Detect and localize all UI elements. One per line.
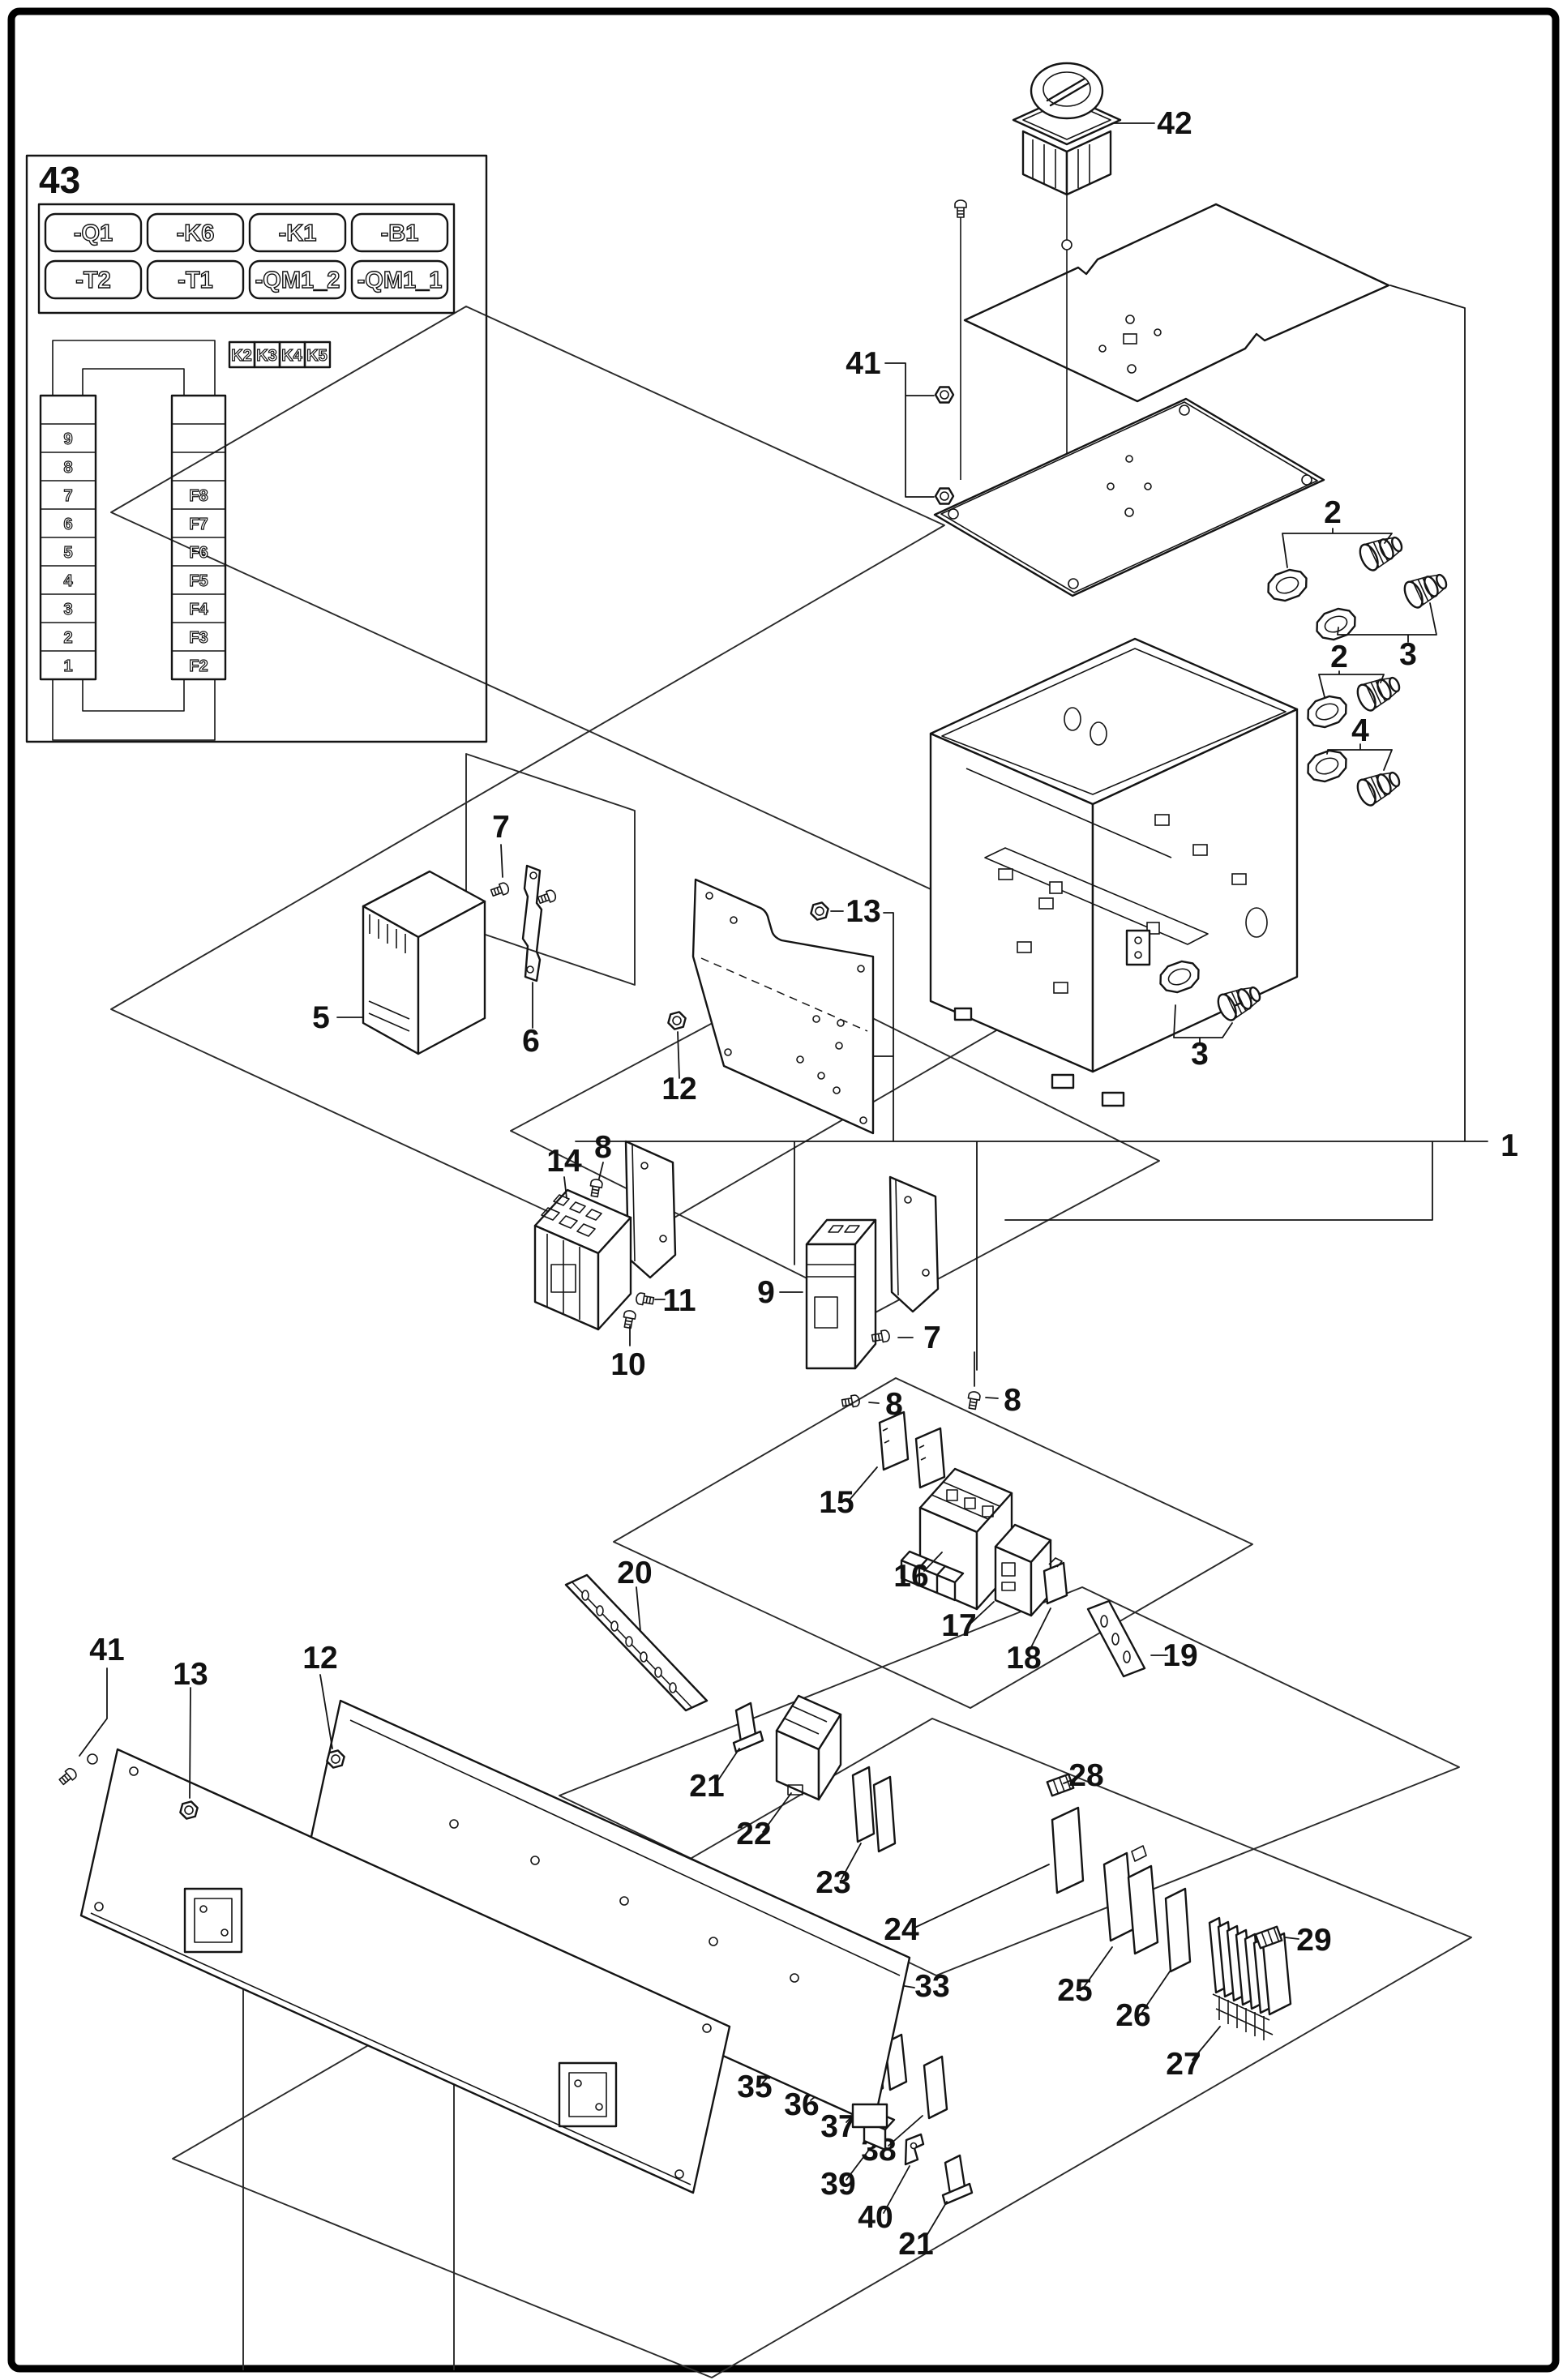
part-40-bracket — [906, 2134, 923, 2164]
callout-26: 26 — [1115, 1998, 1150, 2033]
gasket-hole — [1126, 315, 1134, 323]
callout-42: 42 — [1157, 106, 1192, 141]
rail-slot — [1112, 1633, 1119, 1645]
terminal-label: F5 — [189, 572, 208, 590]
k-label: K3 — [256, 347, 277, 365]
rail-slot — [582, 1590, 589, 1600]
tag-label: -QM1_2 — [255, 268, 340, 293]
screw-icon — [966, 1391, 980, 1410]
legend-number: 43 — [39, 159, 80, 201]
terminal-label: 8 — [63, 459, 72, 477]
end-plate — [1166, 1889, 1190, 1971]
plate-hole — [836, 1042, 842, 1049]
locknut-icon — [1312, 604, 1360, 644]
callout-8: 8 — [594, 1130, 612, 1165]
cover-corner-hole — [1180, 405, 1189, 415]
box-bracket-tab — [1127, 931, 1150, 965]
terminal-label: 5 — [63, 544, 72, 562]
box-foot-tab — [955, 1008, 971, 1020]
cover-hole — [1125, 508, 1133, 516]
box-knockout — [1193, 845, 1207, 855]
callout-27: 27 — [1166, 2047, 1201, 2082]
plate-hole — [95, 1903, 103, 1911]
callout-13: 13 — [173, 1657, 208, 1692]
gasket-hole — [1124, 334, 1137, 344]
plate-hole — [660, 1235, 666, 1242]
box-foot-tab — [1052, 1075, 1073, 1088]
tab-hole — [1135, 952, 1141, 958]
plate-hole — [923, 1269, 929, 1276]
end-clamp-21a: 21 — [689, 1703, 763, 1804]
plate-hole — [730, 917, 737, 923]
callout-3: 3 — [1191, 1037, 1209, 1072]
tag-label: -T2 — [75, 268, 111, 293]
box-foot-tab — [1102, 1093, 1124, 1106]
cable-gland-icon — [1356, 530, 1406, 573]
terminal-label: 2 — [63, 629, 72, 647]
plate-hole — [818, 1072, 824, 1079]
contactor: 8 14 10 11 — [535, 1130, 696, 1382]
callout-20: 20 — [617, 1556, 652, 1590]
callout-41: 41 — [846, 346, 880, 381]
end-plate — [1052, 1808, 1083, 1893]
leader-20 — [636, 1587, 640, 1631]
box-knockout — [1039, 898, 1053, 909]
plate-hole — [641, 1162, 648, 1169]
plate-hole — [860, 1117, 867, 1124]
cover-hole — [1107, 483, 1114, 490]
rail-slot — [611, 1621, 618, 1631]
rail-clamp — [1050, 882, 1062, 893]
bracket-hole — [530, 872, 537, 879]
callout-42-group: 42 — [1112, 106, 1192, 141]
gasket-plate — [965, 204, 1389, 401]
pcb — [916, 1428, 944, 1487]
callout-1: 1 — [1501, 1128, 1518, 1163]
rail-slot — [626, 1637, 632, 1646]
rail-slot — [670, 1683, 676, 1693]
tag-label: -QM1_1 — [357, 268, 443, 293]
power-supply: 5 — [312, 871, 485, 1054]
terminal-wires-top — [53, 340, 215, 396]
callout-2: 2 — [1330, 640, 1348, 674]
plate-hole — [709, 1937, 717, 1946]
callout-24: 24 — [884, 1912, 919, 1947]
box-knockout — [1064, 708, 1081, 730]
terminal-label: F2 — [189, 657, 208, 675]
callout-2: 2 — [1324, 495, 1342, 530]
locknut-icon — [1304, 691, 1351, 731]
plate-hole — [725, 1049, 731, 1055]
plate-hole — [531, 1856, 539, 1864]
box-knockout — [1017, 942, 1031, 952]
mounting-bracket-6: 7 6 — [490, 810, 558, 1059]
cover-corner-hole — [948, 509, 958, 519]
k-label: K5 — [306, 347, 328, 365]
cover-plate — [935, 399, 1324, 596]
jumper-28: 28 — [1047, 1758, 1104, 1796]
plate-hole — [837, 1020, 844, 1026]
callout-21: 21 — [898, 2227, 933, 2262]
tag-label: -K1 — [279, 220, 317, 246]
starter-front — [807, 1244, 855, 1368]
rail-slot — [640, 1652, 647, 1662]
fastener-set-41-top: 41 — [846, 200, 966, 504]
callout-14: 14 — [546, 1144, 582, 1179]
callout-37: 37 — [820, 2109, 855, 2144]
box-knockout — [1246, 908, 1267, 937]
callout-41: 41 — [89, 1633, 124, 1667]
plate-hole — [905, 1196, 911, 1203]
rotary-switch — [1013, 63, 1120, 493]
rail-slot — [1101, 1616, 1107, 1627]
terminal-label: 3 — [63, 601, 72, 619]
terminal-strip-diagram: 9 8 7 6 5 4 3 2 1 F8 F7 F6 F5 F4 F3 F2 — [41, 340, 225, 740]
callout-29: 29 — [1296, 1923, 1331, 1958]
nut-icon — [666, 1011, 687, 1030]
plate-hole — [858, 965, 864, 972]
tag-label: -Q1 — [74, 220, 113, 246]
callout-18: 18 — [1006, 1641, 1041, 1676]
callout-10: 10 — [610, 1347, 645, 1382]
nut-icon — [935, 489, 953, 504]
callout-12: 12 — [661, 1072, 696, 1107]
leader-24 — [913, 1864, 1049, 1928]
screw-icon — [841, 1394, 860, 1408]
gasket-outline — [965, 204, 1389, 401]
gasket-hole — [1099, 345, 1106, 352]
callout-12: 12 — [302, 1641, 337, 1676]
callout-6: 6 — [522, 1024, 540, 1059]
callout-7: 7 — [923, 1321, 941, 1355]
tag-label: -B1 — [381, 220, 419, 246]
callout-13: 13 — [846, 894, 880, 929]
callout-8: 8 — [1004, 1383, 1021, 1418]
block-tab — [1132, 1846, 1146, 1861]
tag-label: -K6 — [177, 220, 215, 246]
plate-hole — [675, 2170, 683, 2178]
rail-slot — [1124, 1651, 1130, 1663]
bracket-screw — [575, 2080, 581, 2087]
bracket-hole — [911, 2143, 917, 2149]
leader-41-top — [885, 363, 934, 497]
part-18-body — [1044, 1563, 1067, 1603]
callout-22: 22 — [736, 1817, 771, 1851]
plate-hole — [703, 2024, 711, 2032]
callout-3: 3 — [1399, 637, 1417, 672]
plate-hole — [706, 892, 713, 899]
terminal-label: F4 — [189, 601, 208, 619]
soft-starter: 9 7 8 — [757, 1177, 941, 1422]
callout-16: 16 — [893, 1559, 928, 1594]
din-rail-20: 20 — [566, 1556, 707, 1710]
leader-6-7 — [501, 845, 533, 1028]
callout-17: 17 — [941, 1608, 976, 1643]
screw-icon — [622, 1310, 636, 1329]
box-knockout — [999, 869, 1013, 880]
terminal-block — [853, 1767, 874, 1842]
box-knockout — [1155, 815, 1169, 825]
rail-slot — [597, 1606, 603, 1616]
callout-19: 19 — [1162, 1638, 1197, 1673]
bracket-screw — [200, 1906, 207, 1912]
screw-icon — [636, 1292, 654, 1306]
plate-hole — [797, 1056, 803, 1063]
plate-hole — [813, 1016, 820, 1022]
washer-icon — [88, 1754, 97, 1764]
cable-gland-icon — [1354, 670, 1403, 713]
terminal-label: F6 — [189, 544, 208, 562]
terminal-label: F8 — [189, 487, 208, 505]
callout-5: 5 — [312, 1000, 330, 1035]
terminal-label: 1 — [63, 657, 72, 675]
mid-mounting-plate: 13 12 — [661, 880, 893, 1141]
nut-icon — [809, 901, 830, 921]
plate-hole — [833, 1087, 840, 1094]
enclosure-box — [931, 639, 1297, 1106]
k-label-row: K2 K3 K4 K5 — [229, 342, 330, 367]
callout-40: 40 — [858, 2200, 893, 2235]
starter-side — [855, 1220, 876, 1368]
cover-hole — [1145, 483, 1151, 490]
bracket-screw — [221, 1929, 228, 1936]
terminal-wires-bottom — [53, 679, 215, 740]
axis-fastener — [1062, 240, 1072, 250]
gasket-hole — [1154, 329, 1161, 336]
locknut-icon — [1264, 565, 1312, 605]
plate-hole — [130, 1767, 138, 1775]
plate-hole — [450, 1820, 458, 1828]
callout-23: 23 — [816, 1865, 850, 1900]
screw-icon — [955, 200, 966, 217]
cover-corner-hole — [1302, 475, 1312, 485]
terminal-label: F3 — [189, 629, 208, 647]
screw-icon — [589, 1179, 602, 1197]
callout-15: 15 — [819, 1485, 854, 1520]
terminal-block — [874, 1777, 895, 1851]
terminal-label: F7 — [189, 516, 208, 533]
k-label: K4 — [281, 347, 302, 365]
callout-4: 4 — [1351, 713, 1369, 748]
callout-33: 33 — [914, 1969, 949, 2004]
callout-9: 9 — [757, 1275, 775, 1310]
terminal-block — [1104, 1853, 1133, 1941]
screw-icon — [58, 1766, 78, 1786]
box-knockout — [1232, 874, 1246, 884]
terminal-label: 7 — [63, 487, 72, 505]
pcb — [880, 1412, 908, 1470]
box-knockout — [1054, 982, 1068, 993]
terminal-label: 4 — [63, 572, 73, 590]
leader-2-mid — [1319, 671, 1384, 697]
exploded-parts-diagram-page: 43 -Q1 -K6 -K1 -B1 -T2 -T1 -QM1_2 -QM1_1… — [0, 0, 1567, 2380]
gasket-hole — [1128, 365, 1136, 373]
plane-top-left — [111, 306, 944, 731]
din-rail-short-19: 19 — [1088, 1601, 1198, 1676]
callout-21: 21 — [689, 1769, 724, 1804]
cable-gland-icon — [1354, 765, 1403, 808]
bracket-screw — [596, 2104, 602, 2110]
plate-hole — [620, 1897, 628, 1905]
terminal-label: 9 — [63, 430, 72, 448]
terminal-block — [1128, 1866, 1158, 1954]
rail-slot — [655, 1667, 661, 1677]
cover-outline — [935, 399, 1324, 596]
subplate-group: 41 13 12 — [58, 1633, 910, 2193]
bracket-outline — [523, 866, 542, 981]
cover-hole — [1126, 456, 1132, 462]
screw-icon — [537, 889, 558, 905]
cable-gland-icon — [1401, 567, 1450, 610]
nut-icon — [935, 387, 953, 403]
bracket-hole — [527, 966, 533, 973]
end-plate-38 — [924, 2057, 947, 2118]
end-plate-24: 24 — [884, 1808, 1083, 1947]
plate-tab — [853, 2104, 887, 2127]
diagram-canvas: 43 -Q1 -K6 -K1 -B1 -T2 -T1 -QM1_2 -QM1_1… — [0, 0, 1567, 2380]
callout-7: 7 — [492, 810, 510, 845]
cover-corner-hole — [1068, 579, 1078, 589]
callout-28: 28 — [1068, 1758, 1103, 1793]
box-knockout — [1090, 722, 1107, 745]
k-label: K2 — [231, 347, 252, 365]
screw-icon — [490, 882, 511, 898]
callout-39: 39 — [820, 2167, 855, 2202]
tab-hole — [1135, 937, 1141, 944]
terminal-label: 6 — [63, 516, 72, 533]
callout-25: 25 — [1057, 1973, 1092, 2008]
tag-label: -T1 — [178, 268, 213, 293]
callout-11: 11 — [662, 1283, 696, 1318]
legend-box-43: 43 -Q1 -K6 -K1 -B1 -T2 -T1 -QM1_2 -QM1_1… — [27, 156, 486, 742]
plate-hole — [790, 1974, 798, 1982]
